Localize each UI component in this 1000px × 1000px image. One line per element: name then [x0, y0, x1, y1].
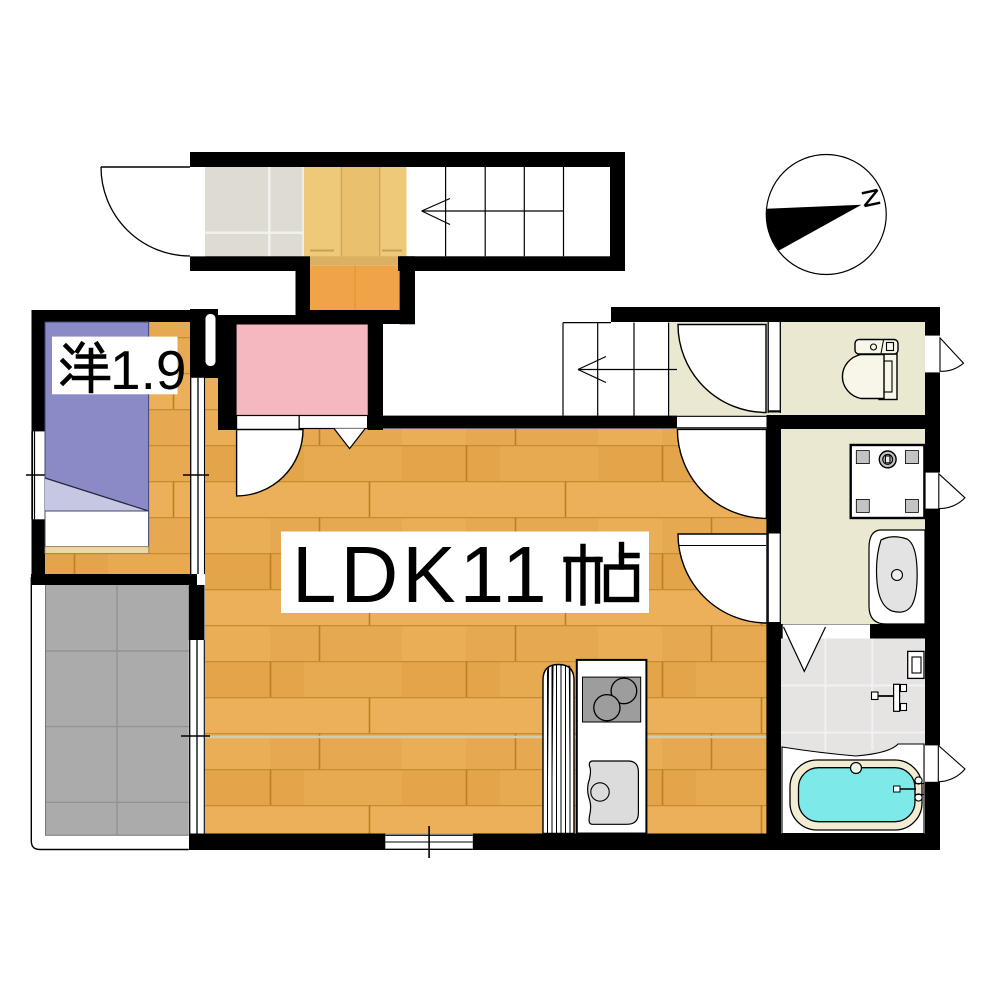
svg-text:1.9: 1.9 — [110, 339, 186, 401]
svg-text:LDK11: LDK11 — [292, 530, 551, 619]
